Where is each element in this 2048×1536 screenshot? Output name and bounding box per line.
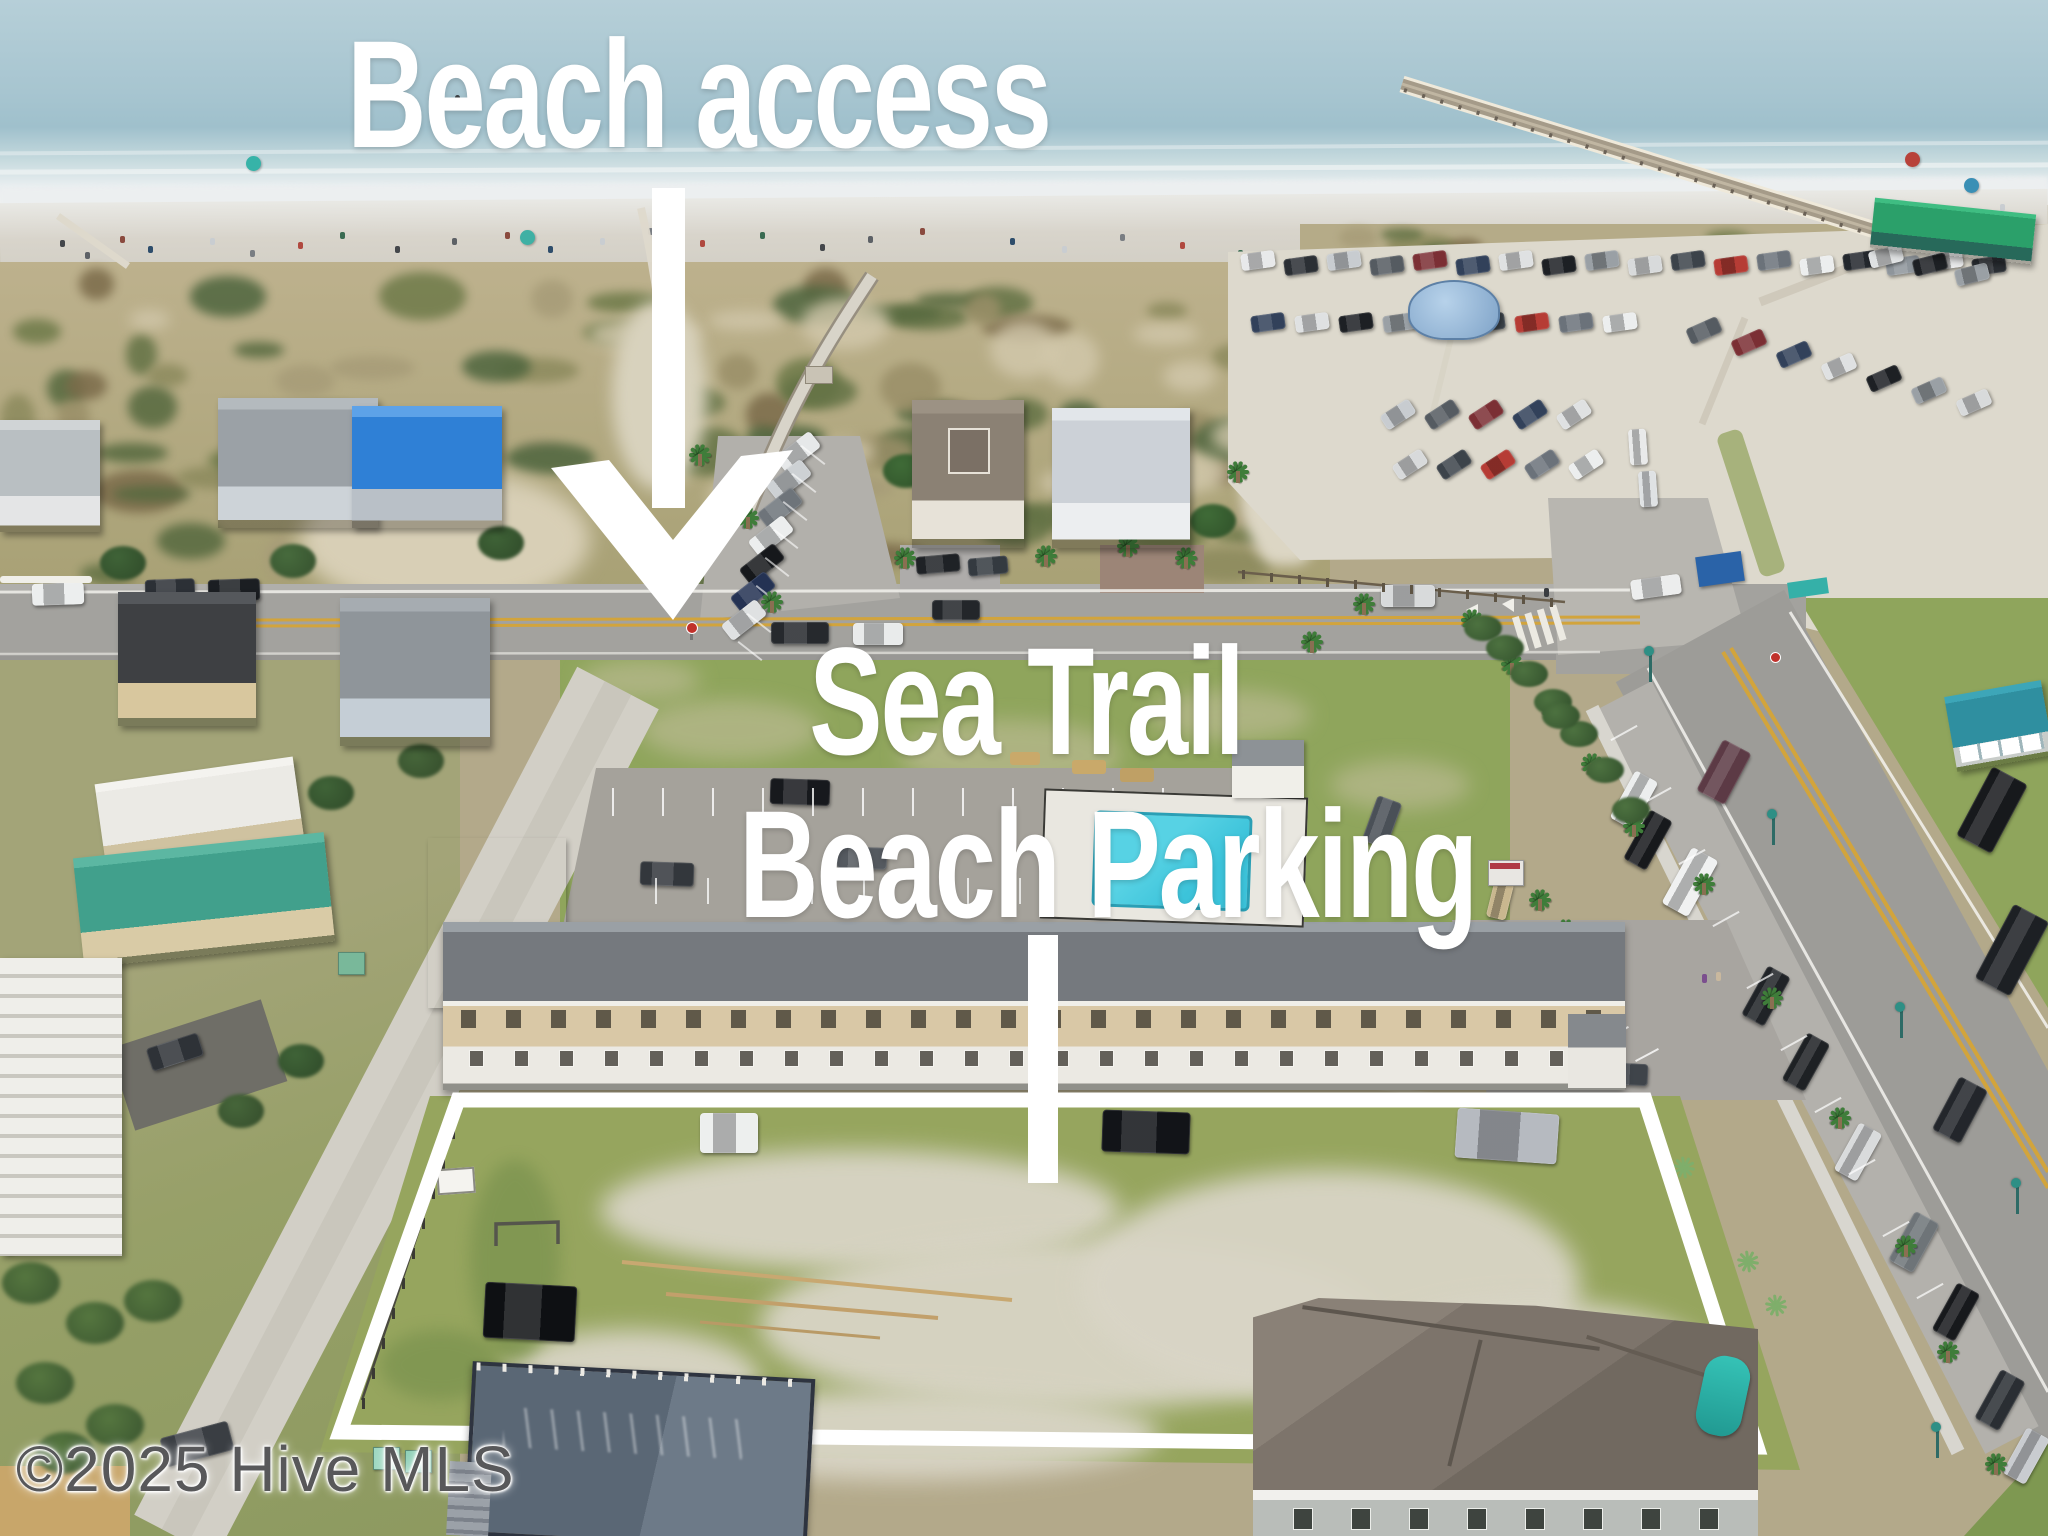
mls-watermark: ©2025 Hive MLS: [16, 1432, 515, 1506]
beach-access-label: Beach access: [347, 18, 923, 171]
sea-trail-label: Sea Trail: [738, 625, 1314, 778]
beach-access-arrow-shaft: [652, 188, 685, 508]
beach-parking-label: Beach Parking: [739, 788, 1315, 941]
aerial-photo: Beach access Sea Trail Beach Parking ©20…: [0, 0, 2048, 1536]
